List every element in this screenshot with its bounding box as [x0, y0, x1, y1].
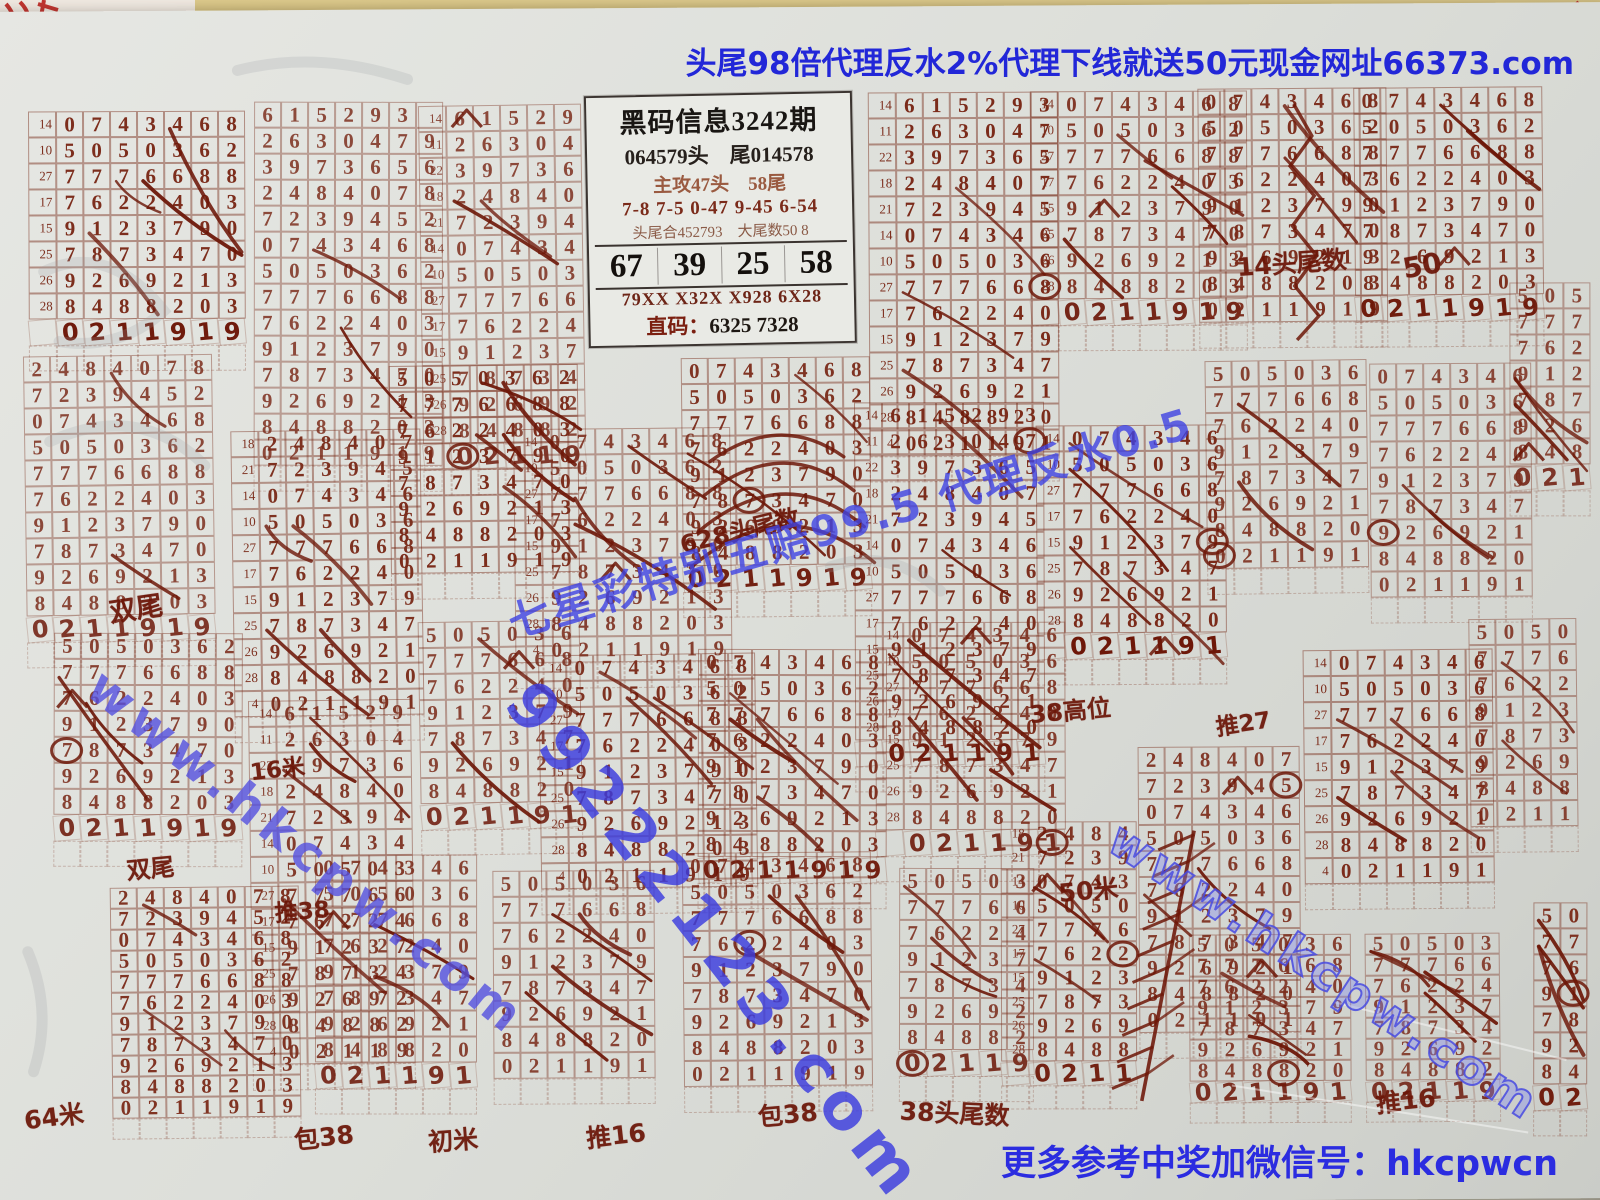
grid-cell: 4 [990, 532, 1017, 558]
grid-cell: 2 [1233, 490, 1260, 516]
grid-cell: 3 [845, 1007, 872, 1033]
grid-cell: 2 [341, 559, 368, 585]
grid-cell: 6 [474, 751, 501, 777]
grid-cell [575, 1078, 602, 1104]
grid-cell: 7 [261, 612, 288, 638]
grid-cell: 3 [977, 222, 1004, 248]
grid-cell: 4 [1477, 363, 1504, 389]
grid-cell: 2 [1226, 296, 1253, 322]
grid-cell: 9 [1065, 581, 1092, 607]
grid-cell: 8 [1496, 723, 1523, 749]
grid-cell [1119, 659, 1146, 685]
grid-cell: 7 [1138, 851, 1165, 877]
grid-cell: 9 [779, 805, 806, 831]
grid-cell: 4 [789, 357, 816, 383]
grid-cell: 4 [1110, 821, 1137, 845]
grid-cell: 0 [24, 408, 51, 434]
grid-cell: 2 [601, 1026, 628, 1052]
grid-cell: 6 [1488, 86, 1515, 112]
grid-cell: 3 [623, 558, 650, 584]
grid-row-label: 15 [28, 215, 56, 241]
grid-cell: 0 [566, 655, 593, 681]
grid-row-label: 21 [419, 210, 447, 236]
grid-cell: 8 [1515, 86, 1542, 112]
grid-cell: 2 [1412, 727, 1439, 753]
grid-cell: 8 [83, 241, 110, 267]
grid-cell: 7 [924, 274, 951, 300]
grid-cell: 3 [1110, 965, 1137, 989]
grid-cell: 2 [1478, 545, 1505, 571]
grid-cell: 6 [1260, 490, 1287, 516]
grid-cell: 7 [191, 241, 218, 267]
grid-cell: 7 [305, 830, 332, 856]
grid-cell: 7 [1260, 464, 1287, 490]
grid-cell: 1 [628, 1000, 655, 1026]
grid-cell: 0 [1085, 117, 1112, 143]
grid-cell: 7 [923, 222, 950, 248]
grid-cell: 3 [358, 751, 385, 777]
grid-cell: 0 [396, 880, 423, 906]
grid-cell: 7 [423, 959, 450, 985]
grid-cell: 8 [1340, 385, 1367, 411]
grid-cell: 4 [1172, 425, 1199, 451]
grid-cell: 1 [1342, 541, 1369, 567]
grid-cell: 3 [1145, 529, 1172, 555]
grid-cell: 0 [192, 293, 219, 319]
grid-cell: 4 [385, 803, 412, 829]
grid-cell: 2 [1419, 996, 1446, 1017]
grid-cell: 0 [254, 232, 281, 258]
grid-cell: 6 [1119, 581, 1146, 607]
grid-cell: 3 [1279, 192, 1306, 218]
grid-cell: 4 [1297, 1018, 1324, 1039]
grid-cell: 1 [952, 1049, 981, 1077]
grid-cell: 9 [1307, 296, 1334, 322]
grid-cell: 4 [137, 887, 164, 908]
grid-cell: 7 [1083, 917, 1110, 941]
grid-cell: 6 [497, 390, 524, 416]
grid-cell: 0 [1495, 619, 1522, 645]
grid-row-label: 14 [250, 831, 278, 857]
grid-cell: 3 [308, 206, 335, 232]
grid-cell: 7 [1247, 902, 1274, 928]
grid-cell: 3 [882, 454, 909, 480]
grid-cell: 8 [138, 293, 165, 319]
grid-cell: 1 [395, 1061, 424, 1089]
grid-cell: 3 [963, 532, 990, 558]
grid-cell: 9 [254, 388, 281, 414]
grid-cell: 6 [574, 896, 601, 922]
grid-cell: 7 [476, 287, 503, 313]
grid-cell: 3 [574, 948, 601, 974]
grid-cell [1342, 567, 1369, 593]
grid-cell: 3 [1550, 722, 1577, 748]
grid-row-label: 27 [1001, 917, 1029, 941]
grid-cell: 3 [1435, 191, 1462, 217]
grid-cell [472, 573, 499, 599]
grid-cell: 7 [162, 711, 189, 737]
grid-cell: 7 [219, 1012, 246, 1033]
grid-cell [1525, 826, 1552, 852]
grid-cell: 9 [104, 381, 131, 407]
grid-cell: 9 [254, 336, 281, 362]
grid-cell: 9 [315, 1010, 342, 1036]
grid-cell: 6 [601, 896, 628, 922]
grid-row-label: 21 [868, 196, 896, 222]
grid-cell: 6 [444, 495, 471, 521]
grid-cell: 8 [816, 408, 843, 434]
grid-cell: 1 [1216, 997, 1243, 1018]
grid-cell: 6 [342, 932, 369, 958]
grid-cell: 7 [1198, 141, 1225, 167]
grid-cell: 1 [449, 1061, 478, 1089]
grid-cell: 2 [503, 338, 530, 364]
grid-cell: 3 [963, 454, 990, 480]
grid-cell: 4 [80, 789, 107, 815]
grid-cell: 0 [1058, 91, 1085, 117]
grid-cell: 8 [272, 928, 299, 949]
grid-cell: 2 [1193, 902, 1220, 928]
grid-cell: 8 [186, 406, 213, 432]
grid-cell: 0 [622, 454, 649, 480]
grid-cell: 3 [192, 1033, 219, 1054]
grid-cell: 1 [1288, 542, 1315, 568]
grid-cell: 6 [191, 137, 218, 163]
grid-cell: 2 [341, 1061, 370, 1089]
grid-cell: 1 [166, 1097, 193, 1118]
grid-cell: 2 [806, 805, 833, 831]
grid-cell: 6 [1504, 388, 1531, 414]
grid-cell: 7 [953, 894, 980, 920]
grid-cell: 9 [1166, 298, 1195, 326]
grid-cell: 0 [81, 633, 108, 659]
grid-cell: 0 [818, 538, 845, 564]
grid-cell: 6 [816, 356, 843, 382]
grid-cell: 2 [139, 1055, 166, 1076]
grid-cell: 4 [554, 130, 581, 156]
contact-footer-text: 更多参考中奖加微信号：hkcpwcn [1001, 1135, 1558, 1186]
grid-cell: 9 [1146, 581, 1173, 607]
grid-cell: 6 [1358, 727, 1385, 753]
grid-cell: 9 [990, 402, 1017, 428]
grid-cell [1167, 325, 1194, 351]
grid-cell: 2 [161, 763, 188, 789]
grid-cell [1271, 1102, 1298, 1123]
grid-cell [1409, 321, 1436, 347]
grid-cell: 2 [1386, 753, 1413, 779]
grid-cell [1382, 321, 1409, 347]
number-grid-block: 5050367776687622409123797873479269218488… [1204, 359, 1369, 595]
grid-cell: 1 [926, 946, 953, 972]
grid-cell: 3 [530, 338, 557, 364]
grid-cell: 4 [1473, 1017, 1500, 1038]
grid-cell: 6 [1324, 934, 1351, 955]
grid-cell: 8 [1091, 555, 1118, 581]
grid-cell: 2 [470, 417, 497, 443]
grid-row-label: 11 [868, 118, 896, 144]
grid-cell: 6 [597, 584, 624, 610]
grid-cell: 6 [737, 1008, 764, 1034]
grid-cell [1261, 568, 1288, 594]
grid-cell: 7 [1469, 723, 1496, 749]
grid-cell: 2 [1252, 192, 1279, 218]
grid-cell: 4 [1165, 747, 1192, 773]
grid-row-label: 26 [1037, 581, 1065, 607]
grid-cell [1146, 659, 1173, 685]
grid-cell [1325, 1102, 1352, 1123]
grid-cell: 3 [471, 469, 498, 495]
grid-cell: 8 [446, 725, 473, 751]
grid-cell: 2 [161, 789, 188, 815]
grid-cell: 8 [111, 293, 138, 319]
grid-cell: 2 [931, 778, 958, 804]
grid-cell [1414, 883, 1441, 909]
grid-row-label: 14 [1303, 650, 1331, 676]
grid-cell: 3 [1412, 649, 1439, 675]
grid-cell: 6 [1199, 450, 1226, 476]
grid-cell: 6 [623, 480, 650, 506]
grid-cell: 7 [444, 469, 471, 495]
grid-cell: 7 [1297, 997, 1324, 1018]
grid-cell: 7 [736, 904, 763, 930]
grid-cell: 0 [845, 981, 872, 1007]
grid-row-label: 18 [419, 184, 447, 210]
grid-cell: 3 [1172, 451, 1199, 477]
grid-cell: 2 [216, 633, 243, 659]
handwritten-note: 64米 [22, 1094, 86, 1137]
grid-cell: 5 [278, 856, 305, 882]
grid-cell: 7 [110, 163, 137, 189]
grid-cell: 4 [339, 429, 366, 455]
grid-cell: 0 [26, 615, 55, 644]
grid-cell: 0 [1489, 164, 1516, 190]
grid-cell: 7 [308, 284, 335, 310]
grid-cell: 9 [1324, 997, 1351, 1018]
grid-cell: 6 [790, 904, 817, 930]
grid-cell: 0 [1145, 451, 1172, 477]
grid-row-label: 14 [854, 532, 882, 558]
grid-cell: 8 [843, 356, 870, 382]
grid-cell: 7 [569, 480, 596, 506]
grid-cell: 2 [621, 732, 648, 758]
grid-cell: 6 [1172, 477, 1199, 503]
grid-cell: 9 [817, 460, 844, 486]
grid-cell: 0 [984, 648, 1011, 674]
grid-cell: 0 [647, 680, 674, 706]
grid-cell: 6 [1313, 385, 1340, 411]
grid-cell: 7 [245, 886, 272, 907]
grid-cell: 6 [926, 920, 953, 946]
grid-cell: 4 [909, 480, 936, 506]
grid-cell: 5 [502, 260, 529, 286]
grid-cell: 8 [218, 111, 245, 137]
grid-cell: 8 [551, 390, 578, 416]
grid-cell: 7 [1478, 467, 1505, 493]
grid-cell: 9 [1469, 697, 1496, 723]
grid-cell: 8 [1489, 138, 1516, 164]
grid-cell: 7 [1408, 217, 1435, 243]
grid-cell: 0 [448, 235, 475, 261]
grid-cell: 4 [1306, 166, 1333, 192]
grid-cell: 1 [710, 957, 737, 983]
grid-row-label: 14 [231, 483, 259, 509]
grid-cell: 4 [1092, 607, 1119, 633]
grid-cell: 2 [762, 435, 789, 461]
grid-cell: 7 [56, 241, 83, 267]
grid-cell: 0 [110, 929, 137, 950]
grid-cell: 6 [389, 232, 416, 258]
grid-cell: 3 [215, 789, 242, 815]
grid-cell: 4 [557, 312, 584, 338]
grid-cell: 8 [1273, 850, 1300, 876]
grid-cell: 0 [555, 182, 582, 208]
number-grid-block: 5050362777668876224039123790787347092692… [53, 633, 243, 867]
grid-row-label: 4 [1305, 858, 1333, 884]
grid-cell: 6 [789, 409, 816, 435]
grid-cell: 3 [779, 753, 806, 779]
grid-cell: 7 [650, 532, 677, 558]
grid-row-label: 27 [1303, 702, 1331, 728]
grid-cell: 8 [1424, 545, 1451, 571]
grid-cell: 2 [1451, 441, 1478, 467]
grid-cell: 7 [369, 984, 396, 1010]
grid-row-label: 22 [868, 144, 896, 170]
grid-cell: 0 [1029, 869, 1056, 893]
grid-cell: 2 [1012, 778, 1039, 804]
grid-cell: 7 [1386, 779, 1413, 805]
info-direct-code: 直码：6325 7328 [596, 307, 849, 342]
grid-cell: 8 [569, 837, 596, 863]
info-main-numbers: 67 39 25 58 [595, 239, 848, 289]
grid-cell: 0 [52, 814, 81, 842]
grid-cell: 9 [1451, 519, 1478, 545]
grid-cell: 7 [1536, 308, 1563, 334]
grid-cell: 0 [1434, 113, 1461, 139]
grid-row-label: 11 [248, 727, 276, 753]
grid-cell: 8 [1140, 273, 1167, 299]
grid-cell: 6 [254, 102, 281, 128]
grid-cell: 9 [1470, 749, 1497, 775]
grid-cell: 4 [950, 222, 977, 248]
grid-cell [1471, 827, 1498, 853]
grid-cell [1086, 325, 1113, 351]
grid-cell: 2 [951, 326, 978, 352]
grid-cell: 5 [1385, 675, 1412, 701]
grid-cell: 8 [185, 354, 212, 380]
grid-cell: 4 [1478, 493, 1505, 519]
grid-cell: 4 [790, 852, 817, 878]
grid-cell: 2 [443, 417, 470, 443]
grid-cell: 2 [1535, 463, 1564, 491]
grid-cell: 3 [273, 990, 300, 1011]
grid-cell: 2 [1424, 441, 1451, 467]
grid-cell: 9 [342, 637, 369, 663]
grid-cell: 3 [1451, 467, 1478, 493]
grid-cell: 7 [681, 436, 708, 462]
grid-cell: 7 [389, 392, 416, 418]
grid-cell: 0 [1138, 799, 1165, 825]
grid-cell: 8 [389, 284, 416, 310]
grid-cell: 9 [601, 1052, 628, 1078]
grid-cell: 8 [189, 659, 216, 685]
grid-cell: 3 [1516, 164, 1543, 190]
grid-row-label: 11 [418, 132, 446, 158]
grid-cell: 1 [1446, 1079, 1475, 1102]
grid-row-label: 26 [869, 378, 897, 404]
grid-cell: 2 [258, 431, 285, 457]
grid-cell: 1 [817, 563, 846, 592]
grid-cell: 7 [903, 700, 930, 726]
grid-cell: 9 [682, 462, 709, 488]
grid-cell: 9 [1039, 726, 1066, 752]
grid-cell: 4 [1246, 876, 1273, 902]
grid-cell: 6 [416, 417, 443, 443]
grid-cell: 7 [1112, 143, 1139, 169]
grid-cell: 8 [1355, 270, 1382, 296]
grid-cell: 4 [1560, 1058, 1587, 1084]
grid-cell: 1 [52, 512, 79, 538]
grid-cell: 9 [1505, 466, 1532, 492]
grid-cell: 1 [1085, 195, 1112, 221]
grid-row-label: 18 [868, 170, 896, 196]
grid-cell: 9 [574, 1000, 601, 1026]
grid-cell: 4 [1166, 91, 1193, 117]
grid-cell: 3 [1192, 772, 1219, 798]
grid-cell [494, 1079, 521, 1105]
grid-cell: 7 [1381, 139, 1408, 165]
grid-cell: 3 [164, 137, 191, 163]
grid-cell: 5 [682, 879, 709, 905]
number-grid-block: 1824842172391407431050502777761776221591… [1001, 821, 1138, 1109]
grid-cell: 8 [1359, 779, 1386, 805]
grid-cell: 7 [1232, 386, 1259, 412]
grid-cell: 0 [1470, 801, 1497, 827]
handwritten-note: 包38 [756, 1092, 819, 1133]
grid-cell: 4 [977, 170, 1004, 196]
grid-cell: 1 [1145, 632, 1174, 660]
grid-cell: 3 [1278, 88, 1305, 114]
grid-cell: 2 [108, 711, 135, 737]
grid-cell: 8 [138, 1034, 165, 1055]
grid-cell: 7 [1259, 386, 1286, 412]
grid-cell: 6 [445, 673, 472, 699]
grid-cell: 8 [164, 887, 191, 908]
grid-cell: 2 [737, 930, 764, 956]
grid-cell: 3 [779, 649, 806, 675]
grid-cell [1305, 884, 1333, 910]
grid-cell: 3 [806, 675, 833, 701]
grid-cell: 3 [1297, 934, 1324, 955]
grid-cell: 7 [596, 558, 623, 584]
grid-row-label: 28 [1001, 1037, 1029, 1061]
grid-cell: 7 [1419, 1017, 1446, 1038]
grid-cell: 7 [957, 674, 984, 700]
grid-cell: 5 [620, 680, 647, 706]
grid-cell: 9 [25, 512, 52, 538]
grid-cell: 9 [897, 378, 924, 404]
grid-cell: 0 [568, 454, 595, 480]
grid-cell: 7 [1029, 845, 1056, 869]
grid-cell: 8 [765, 1034, 792, 1060]
grid-cell: 9 [846, 1059, 873, 1085]
grid-cell: 8 [369, 1036, 396, 1062]
grid-cell: 3 [1139, 91, 1166, 117]
grid-cell: 9 [1462, 294, 1491, 322]
grid-cell: 6 [763, 904, 790, 930]
grid-cell: 5 [472, 621, 499, 647]
grid-cell: 6 [450, 881, 477, 907]
grid-cell: 3 [1145, 425, 1172, 451]
